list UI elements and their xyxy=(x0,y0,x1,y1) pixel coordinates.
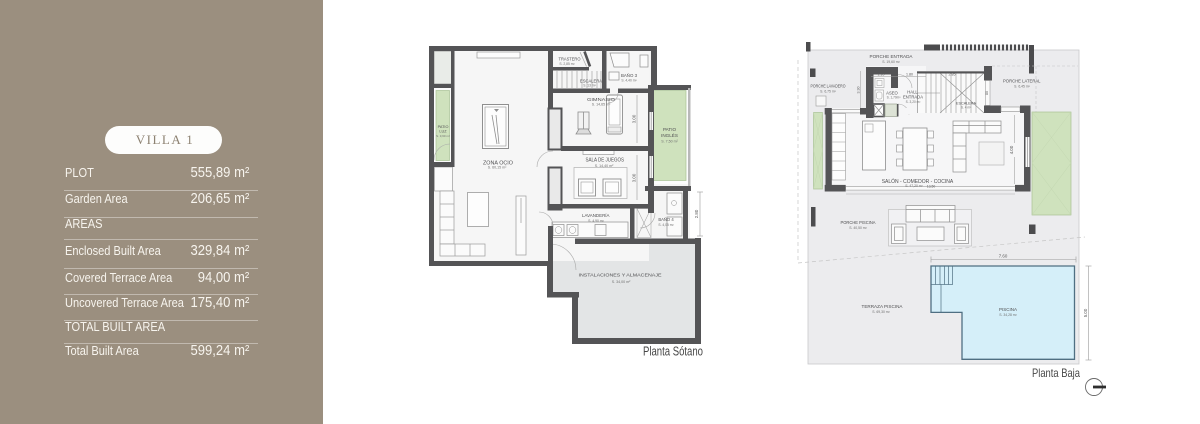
svg-text:1.10: 1.10 xyxy=(878,73,885,77)
svg-text:1.80: 1.80 xyxy=(906,73,913,77)
svg-text:3.30: 3.30 xyxy=(857,87,861,94)
svg-text:S. 47,20 m²: S. 47,20 m² xyxy=(905,184,923,188)
svg-text:PATIO: PATIO xyxy=(438,125,449,129)
svg-text:S. 34,28 m²: S. 34,28 m² xyxy=(999,313,1017,317)
svg-text:TRASTERO: TRASTERO xyxy=(559,57,581,62)
svg-text:PORCHE PISCINA: PORCHE PISCINA xyxy=(841,220,877,225)
svg-text:3.00: 3.00 xyxy=(632,173,637,182)
svg-text:INSTALACIONES Y ALMACENAJE: INSTALACIONES Y ALMACENAJE xyxy=(579,273,662,279)
svg-text:4.00: 4.00 xyxy=(1009,145,1014,154)
svg-text:2.85: 2.85 xyxy=(949,73,956,77)
svg-text:ENTRADA: ENTRADA xyxy=(903,95,923,100)
svg-text:BAÑO 4: BAÑO 4 xyxy=(658,217,674,222)
svg-text:2.80: 2.80 xyxy=(694,209,699,218)
svg-text:Planta Baja: Planta Baja xyxy=(1032,366,1080,380)
svg-text:LUZ: LUZ xyxy=(439,130,447,134)
svg-text:S. 34,00 m²: S. 34,00 m² xyxy=(612,280,631,284)
svg-text:S. 4 m²: S. 4 m² xyxy=(961,106,971,110)
svg-text:3.00: 3.00 xyxy=(632,114,637,123)
svg-text:S. 19,60 m²: S. 19,60 m² xyxy=(882,60,900,64)
svg-text:PISCINA: PISCINA xyxy=(999,307,1018,312)
svg-text:S. 69,30 m²: S. 69,30 m² xyxy=(872,310,890,314)
svg-text:SALA DE JUEGOS: SALA DE JUEGOS xyxy=(586,158,625,164)
svg-text:S. 2,85 m²: S. 2,85 m² xyxy=(559,62,575,66)
svg-text:S. 4,05 m²: S. 4,05 m² xyxy=(658,223,674,227)
svg-text:PORCHE ENTRADA: PORCHE ENTRADA xyxy=(870,54,914,59)
svg-text:S. 3,20 m²: S. 3,20 m² xyxy=(906,100,921,104)
svg-text:S. 40,50 m²: S. 40,50 m² xyxy=(849,226,867,230)
svg-text:S. 6,45 m²: S. 6,45 m² xyxy=(1014,85,1031,89)
svg-text:BAÑO 3: BAÑO 3 xyxy=(621,73,638,78)
svg-text:INGLÉS: INGLÉS xyxy=(661,132,678,138)
svg-text:13,50: 13,50 xyxy=(927,184,936,188)
svg-text:5.38: 5.38 xyxy=(593,89,599,93)
svg-text:S. 3,60 m²: S. 3,60 m² xyxy=(436,134,450,138)
svg-text:S. 14,65 m²: S. 14,65 m² xyxy=(592,103,611,107)
svg-text:S. 4,90 m²: S. 4,90 m² xyxy=(588,219,605,223)
svg-text:Planta Sótano: Planta Sótano xyxy=(643,344,703,359)
svg-text:TERRAZA PISCINA: TERRAZA PISCINA xyxy=(862,304,904,309)
svg-text:S. 4,40 m²: S. 4,40 m² xyxy=(621,79,637,83)
svg-text:S. 1,70m²: S. 1,70m² xyxy=(887,96,901,100)
svg-text:5.00: 5.00 xyxy=(1083,308,1088,317)
svg-text:S. 7,50 m²: S. 7,50 m² xyxy=(661,140,678,144)
svg-text:PORCHE LAVADERO: PORCHE LAVADERO xyxy=(811,84,846,89)
svg-text:S. 13 m²: S. 13 m² xyxy=(583,84,596,88)
svg-text:LAVANDERÍA: LAVANDERÍA xyxy=(582,212,610,218)
svg-text:S. 14,40 m²: S. 14,40 m² xyxy=(595,164,614,168)
svg-text:S. 60,15 m²: S. 60,15 m² xyxy=(488,165,507,169)
svg-text:S. 6,75 m²: S. 6,75 m² xyxy=(820,90,837,94)
svg-text:PORCHE LATERAL: PORCHE LATERAL xyxy=(1003,79,1041,84)
svg-text:80: 80 xyxy=(985,91,989,95)
svg-text:PATIO: PATIO xyxy=(663,127,677,132)
svg-text:7.60: 7.60 xyxy=(999,254,1008,259)
